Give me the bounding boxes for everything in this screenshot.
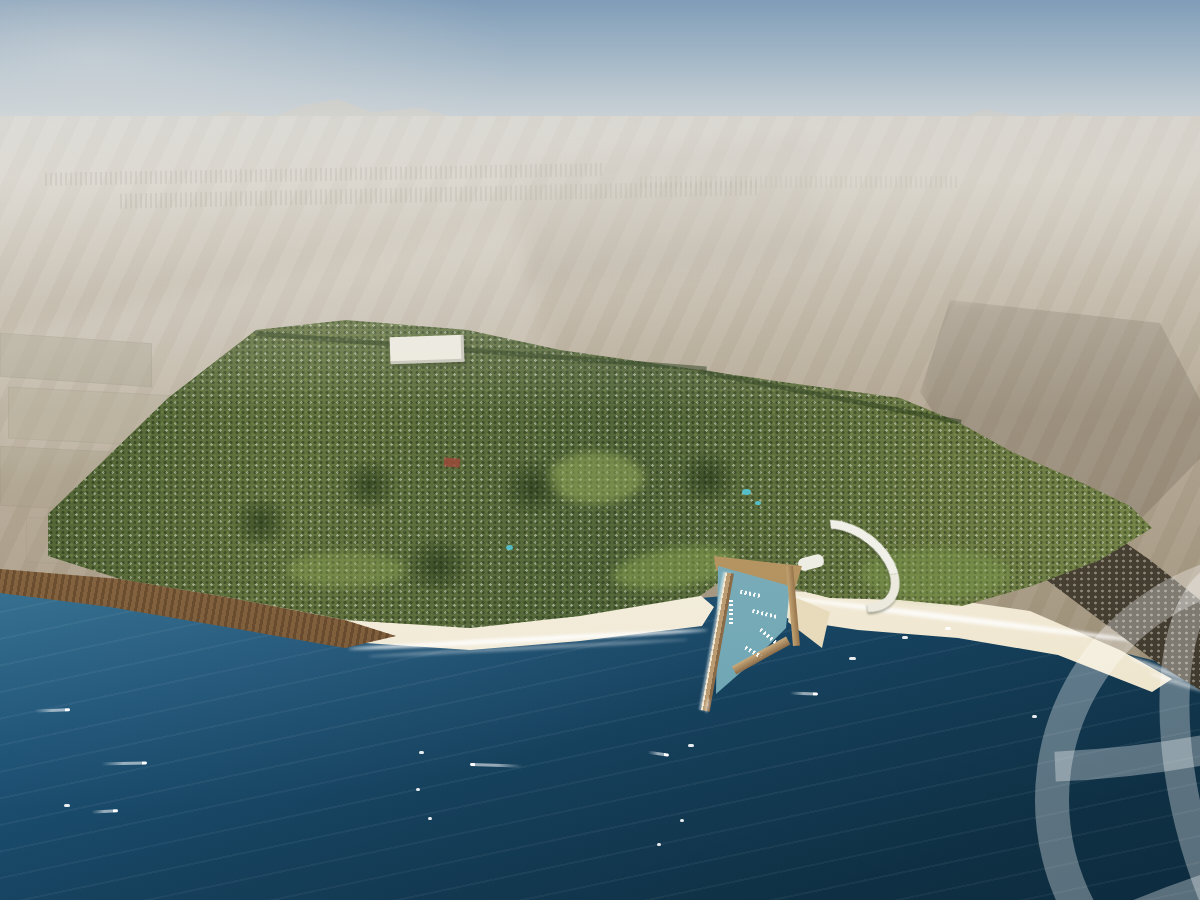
boat: [849, 657, 856, 660]
boat: [688, 744, 694, 747]
boat: [416, 788, 420, 791]
pool: [742, 489, 751, 495]
boat: [428, 817, 432, 820]
red-roof-cluster: [444, 457, 461, 468]
pool: [755, 501, 761, 505]
tree-copse: [226, 500, 296, 544]
tree-copse: [336, 462, 402, 508]
boat: [1032, 715, 1037, 718]
boat: [680, 819, 684, 822]
tree-copse: [676, 450, 740, 506]
boat: [657, 843, 661, 846]
aerial-render: [0, 0, 1200, 900]
lawn-patch: [286, 552, 406, 588]
docked-boats: [729, 598, 733, 624]
boat: [945, 627, 951, 630]
pool: [506, 545, 513, 550]
boat: [64, 804, 70, 807]
white-complex: [390, 335, 465, 365]
boat: [419, 751, 424, 754]
tree-copse: [398, 540, 478, 590]
tree-copse: [498, 462, 568, 514]
boat: [902, 636, 908, 639]
